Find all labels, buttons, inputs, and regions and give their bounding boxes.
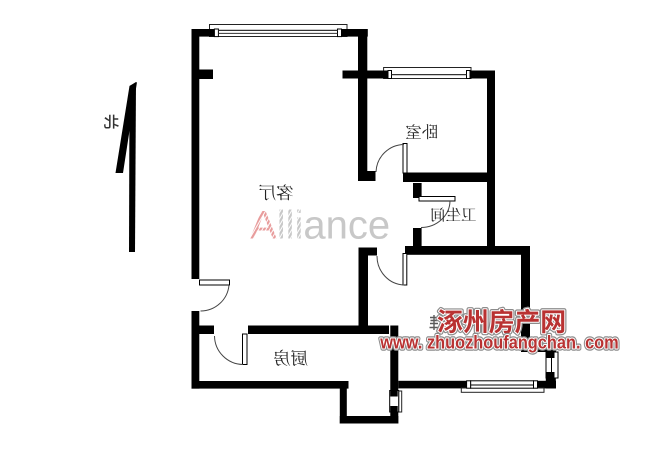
svg-text:www. zhuozhoufangchan. com: www. zhuozhoufangchan. com	[379, 331, 618, 352]
svg-text:Alliance: Alliance	[250, 204, 390, 248]
